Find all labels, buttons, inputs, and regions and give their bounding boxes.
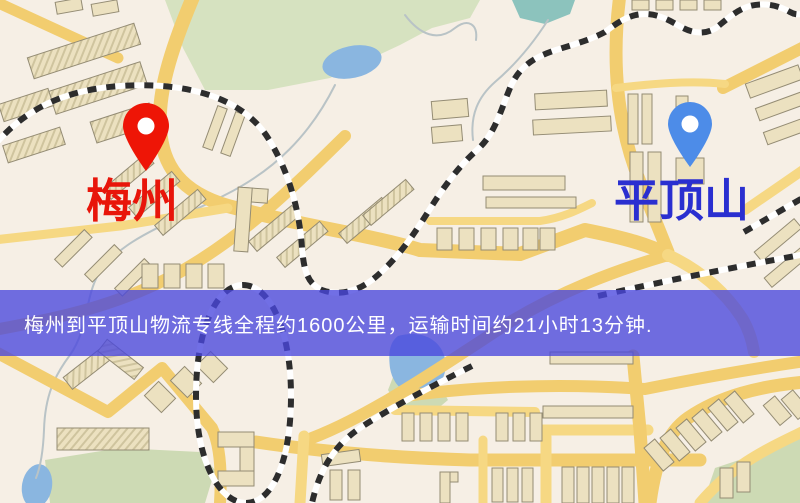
marker-label-meizhou: 梅州	[86, 178, 178, 224]
map-canvas	[0, 0, 800, 503]
route-info-text: 梅州到平顶山物流专线全程约1600公里，运输时间约21小时13分钟.	[24, 309, 653, 338]
route-info-banner: 梅州到平顶山物流专线全程约1600公里，运输时间约21小时13分钟.	[0, 290, 800, 356]
marker-label-pingdingshan: 平顶山	[614, 178, 749, 223]
logistics-route-map: 梅州 平顶山 梅州到平顶山物流专线全程约1600公里，运输时间约21小时13分钟…	[0, 0, 800, 503]
